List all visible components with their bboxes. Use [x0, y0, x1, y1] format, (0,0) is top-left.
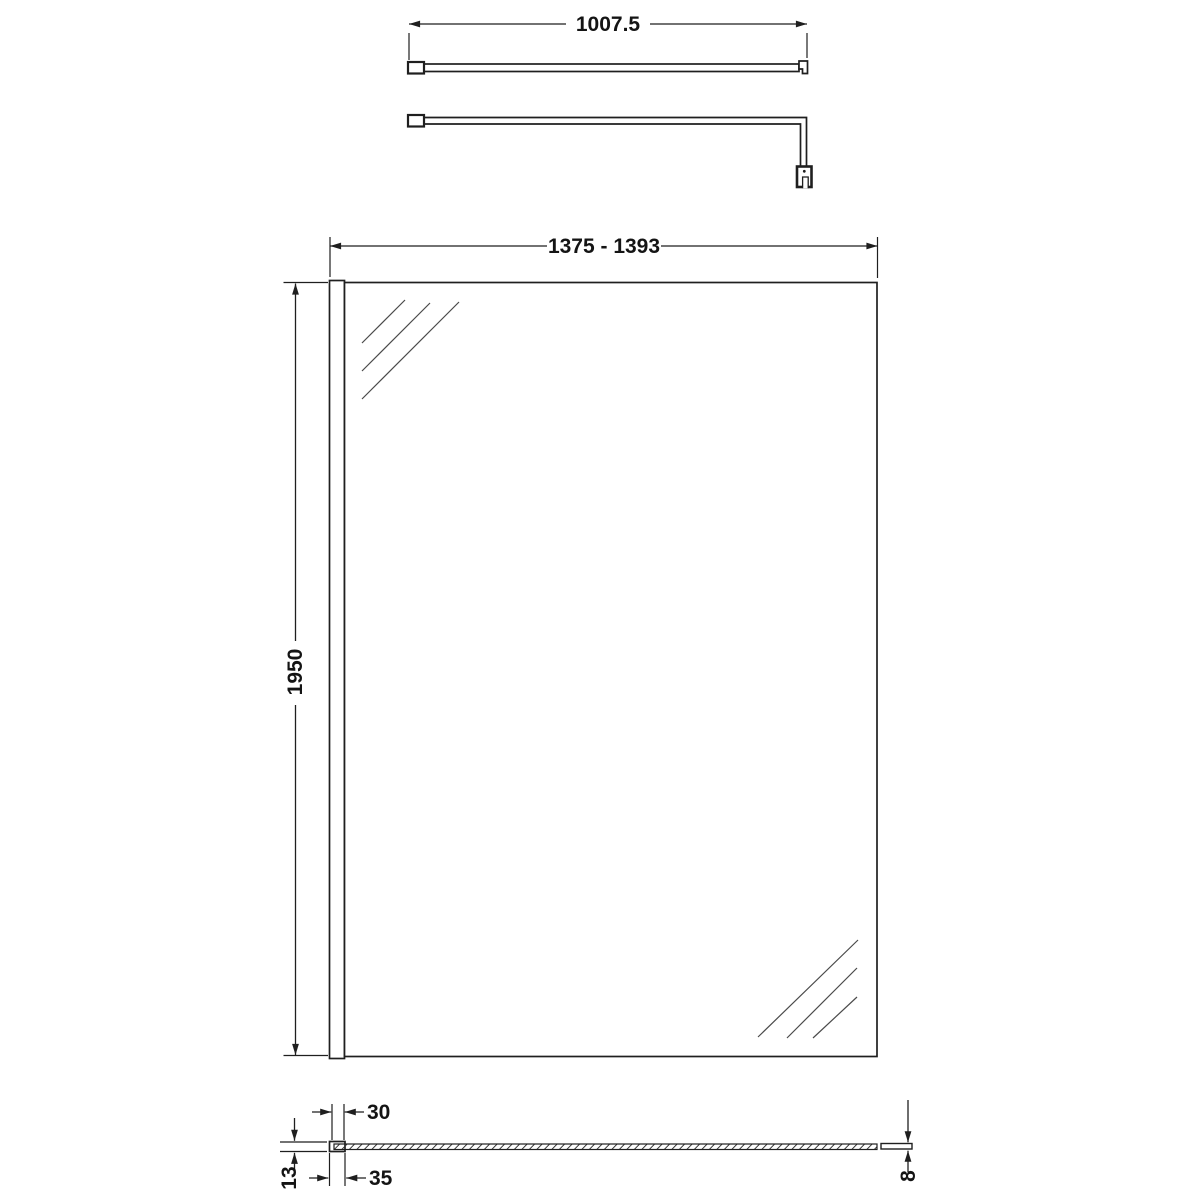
glass-thickness-label: 8 [897, 1170, 920, 1182]
clamp-screw-dot [803, 170, 806, 173]
glass-panel-section [334, 1144, 877, 1150]
profile-depth-label: 13 [278, 1166, 301, 1189]
profile-slot-width-label: 30 [367, 1101, 390, 1124]
glass-clamp-slot [803, 177, 809, 188]
support-bar-inner-line [424, 124, 801, 167]
wall-bracket-side [408, 115, 424, 127]
technical-drawing-page: 1007.5 1375 - 1393 1950 [0, 0, 1200, 1200]
panel-height-label: 1950 [284, 649, 307, 696]
support-bar-tube-top [424, 64, 799, 72]
wall-profile-front [330, 281, 345, 1059]
glass-bracket-top [799, 61, 808, 74]
view-panel-section: 30 13 35 8 [278, 1100, 920, 1190]
drawing-svg: 1007.5 1375 - 1393 1950 [0, 0, 1200, 1200]
support-bar-length-label: 1007.5 [576, 13, 641, 36]
wall-bracket-top [408, 62, 424, 74]
profile-outer-width-label: 35 [369, 1167, 393, 1190]
view-panel-front: 1375 - 1393 1950 [282, 234, 878, 1059]
glass-panel-front [345, 283, 878, 1057]
panel-width-label: 1375 - 1393 [548, 235, 660, 258]
view-support-bar-top: 1007.5 [408, 12, 808, 74]
glass-thickness-segment [881, 1144, 912, 1150]
view-support-bar-side [408, 115, 812, 188]
